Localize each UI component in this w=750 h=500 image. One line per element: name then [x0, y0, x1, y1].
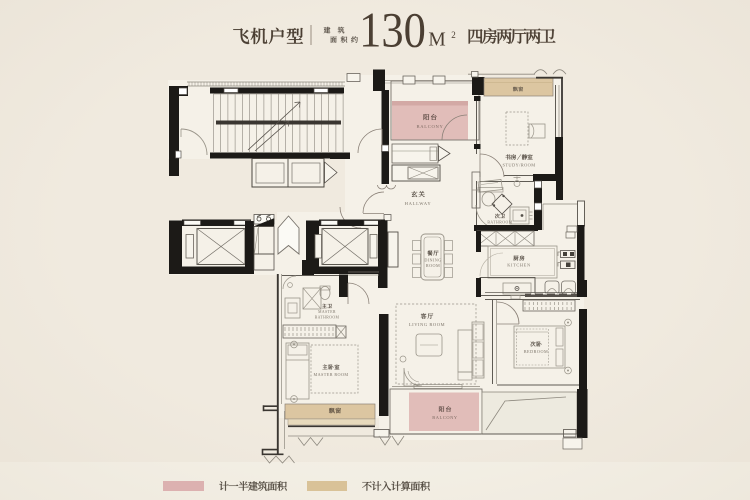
svg-text:ROOM: ROOM	[426, 263, 440, 268]
svg-text:HALLWAY: HALLWAY	[405, 201, 432, 206]
svg-text:M: M	[428, 30, 445, 51]
svg-text:LIVING ROOM: LIVING ROOM	[409, 322, 445, 327]
svg-text:2: 2	[451, 30, 456, 40]
svg-text:BALCONY: BALCONY	[416, 124, 443, 129]
svg-text:MASTER ROOM: MASTER ROOM	[314, 372, 349, 377]
svg-text:KITCHEN: KITCHEN	[507, 263, 531, 268]
svg-text:MASTER: MASTER	[318, 310, 336, 314]
svg-text:BATHROOM: BATHROOM	[487, 221, 512, 225]
svg-text:BEDROOM: BEDROOM	[524, 349, 548, 354]
svg-text:DINING: DINING	[424, 258, 441, 263]
svg-text:STUDY/ROOM: STUDY/ROOM	[502, 163, 535, 168]
svg-text:130: 130	[359, 3, 426, 58]
svg-text:BATHROOM: BATHROOM	[315, 316, 340, 320]
svg-text:BALCONY: BALCONY	[432, 415, 458, 420]
